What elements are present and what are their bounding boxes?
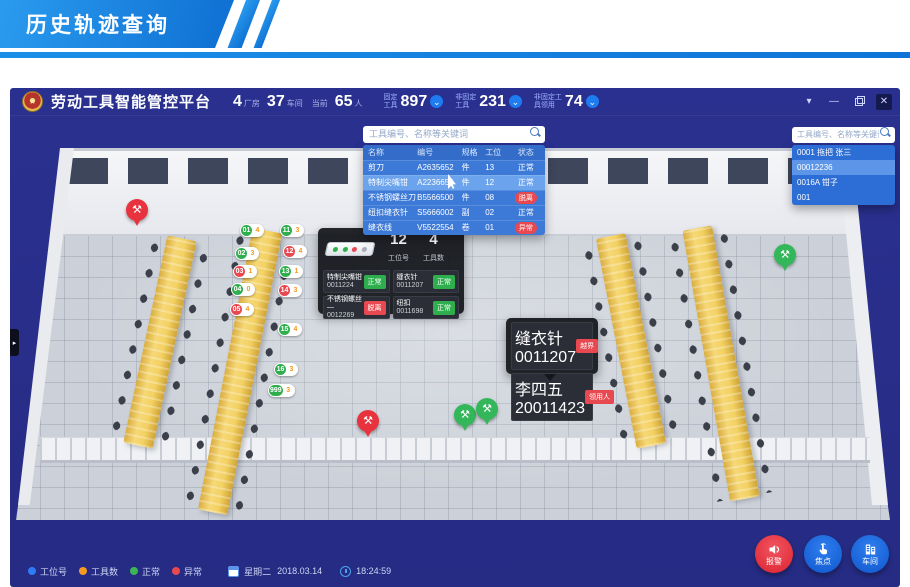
station-badge[interactable]: 023 — [235, 247, 259, 260]
site-stats: 4 厂房 37 车间 当前 65 人 — [233, 93, 370, 111]
list-item[interactable]: 0016A 钳子 — [792, 175, 895, 190]
tool-code: 0011224 — [327, 282, 362, 290]
current-label: 当前 — [312, 98, 328, 109]
police-badge-logo: ★ — [22, 91, 43, 112]
station-number: 12 — [284, 246, 295, 257]
station-badge[interactable]: 131 — [279, 265, 303, 278]
tool-code: 0011207 — [397, 282, 424, 290]
page-banner: 历史轨迹查询 — [0, 0, 234, 48]
station-badge[interactable]: 154 — [278, 323, 302, 336]
col-spec: 规格 — [462, 147, 486, 158]
tool-name: 缝衣针 — [515, 325, 576, 349]
station-badge[interactable]: 031 — [233, 265, 257, 278]
current-count: 65 — [335, 93, 353, 111]
chevron-down-icon[interactable]: ⌄ — [509, 95, 522, 108]
legend-toolcount: 工具数 — [79, 565, 118, 578]
tool-dot-normal — [342, 247, 348, 252]
station-number-stat: 12 工位号 — [388, 233, 409, 265]
station-label: 工位号 — [388, 255, 409, 262]
col-station: 工位 — [485, 147, 511, 158]
restore-icon[interactable] — [851, 94, 867, 110]
station-number: 999 — [269, 385, 283, 396]
tool-count: 3 — [283, 385, 294, 396]
tool-cell: 特制尖嘴钳 0011224 正常 — [323, 270, 390, 293]
col-code: 编号 — [417, 147, 461, 158]
col-status: 状态 — [512, 147, 540, 158]
workshop-unit: 车间 — [287, 98, 303, 109]
alert-row: 李四五 20011423 领用人 — [511, 373, 593, 421]
stat-unfixed-tools-inuse: 非固定工具领用 74 ⌄ — [534, 93, 599, 111]
table-row[interactable]: 缝衣线 V5522554 卷 01 异常 — [363, 220, 545, 235]
alert-badge: 越界 — [576, 339, 598, 353]
banner-underline — [0, 52, 910, 58]
col-name: 名称 — [368, 147, 417, 158]
tools-value: 4 — [423, 233, 444, 247]
map-pin-alert[interactable]: ⚒ — [357, 410, 379, 432]
tool-count: 3 — [286, 364, 297, 375]
legend-dot-green — [130, 567, 138, 575]
app-header: ★ 劳动工具智能管控平台 4 厂房 37 车间 当前 65 人 固定工具 897… — [10, 88, 900, 116]
station-number: 03 — [234, 266, 245, 277]
app-title: 劳动工具智能管控平台 — [51, 91, 211, 112]
tool-count-stat: 4 工具数 — [423, 233, 444, 265]
crossed-tools-icon: ⚒ — [132, 205, 142, 216]
table-row[interactable]: 纽扣缝衣针 S5666002 副 02 正常 — [363, 205, 545, 220]
alert-tooltip: 缝衣针 0011207 越界 李四五 20011423 领用人 — [506, 318, 598, 374]
station-badge[interactable]: 9993 — [268, 384, 295, 397]
legend-dot-red — [172, 567, 180, 575]
map-pin-alert[interactable]: ⚒ — [126, 199, 148, 221]
tool-count: 3 — [247, 248, 258, 259]
station-number: 02 — [236, 248, 247, 259]
station-tooltip: 12 工位号 4 工具数 特制尖嘴钳 0011224 正常 — [318, 228, 464, 314]
table-row[interactable]: 剪刀 A2635652 件 13 正常 — [363, 160, 545, 175]
tool-count: 4 — [290, 324, 301, 335]
workshop-scene: ▸ ⚒ ⚒ ⚒ ⚒ ⚒ ⚒ 014 023 031 040 054 113 12… — [10, 88, 900, 587]
station-number: 16 — [275, 364, 286, 375]
tool-dot-alert — [352, 247, 358, 252]
date: 2018.03.14 — [277, 566, 322, 576]
status-text: 正常 — [512, 162, 540, 173]
status-text: 正常 — [512, 177, 540, 188]
stat-value: 897 — [401, 93, 428, 111]
tool-strip-illustration — [325, 242, 376, 256]
crossed-tools-icon: ⚒ — [460, 410, 470, 421]
table-header: 名称 编号 规格 工位 状态 — [363, 145, 545, 160]
stat-value: 231 — [479, 93, 506, 111]
drawer-arrow-icon: ▸ — [13, 339, 17, 347]
status-badge: 正常 — [433, 301, 455, 315]
station-badge[interactable]: 054 — [230, 303, 254, 316]
time: 18:24:59 — [356, 566, 391, 576]
tool-cell: 不锈钢螺丝— 0012269 脱离 — [323, 296, 390, 319]
search-icon[interactable] — [880, 127, 890, 137]
drawer-handle[interactable]: ▸ — [10, 329, 19, 356]
tool-name: 特制尖嘴钳 — [327, 274, 362, 282]
tool-dot-normal — [333, 247, 339, 252]
workshop-button[interactable]: 车间 — [851, 535, 889, 573]
chevron-down-icon[interactable]: ⌄ — [430, 95, 443, 108]
tool-count: 1 — [291, 266, 302, 277]
crossed-tools-icon: ⚒ — [482, 404, 492, 415]
list-item-highlighted[interactable]: 00012236 — [792, 160, 895, 175]
station-number: 11 — [281, 225, 292, 236]
tool-stats: 固定工具 897 ⌄ 非固定工具 231 ⌄ 非固定工具领用 74 ⌄ — [384, 93, 611, 111]
tool-search-panel: 名称 编号 规格 工位 状态 剪刀 A2635652 件 13 正常 特 — [363, 124, 545, 235]
station-number: 05 — [231, 304, 242, 315]
tool-count: 4 — [295, 246, 306, 257]
tool-code: 0011698 — [397, 308, 424, 316]
stat-value: 74 — [565, 93, 583, 111]
station-badge[interactable]: 143 — [278, 284, 302, 297]
search-icon[interactable] — [530, 127, 540, 137]
legend-abnormal: 异常 — [172, 565, 202, 578]
focus-button[interactable]: 焦点 — [804, 535, 842, 573]
crossed-tools-icon: ⚒ — [363, 416, 373, 427]
tool-dot-empty — [361, 247, 367, 252]
pointer-hand-icon — [816, 542, 831, 557]
status-badge: 脱离 — [515, 192, 537, 204]
list-item[interactable]: 0001 拖把 张三 — [792, 145, 895, 160]
weekday: 星期二 — [244, 565, 271, 578]
logo-star-icon: ★ — [29, 97, 36, 106]
search-results-table: 名称 编号 规格 工位 状态 剪刀 A2635652 件 13 正常 特 — [363, 145, 545, 235]
legend-dot-blue — [28, 567, 36, 575]
window-menu-chevron-icon[interactable]: ▾ — [801, 94, 817, 110]
station-badge[interactable]: 124 — [283, 245, 307, 258]
page-title: 历史轨迹查询 — [0, 9, 170, 39]
station-badge[interactable]: 014 — [240, 224, 264, 237]
table-row[interactable]: 不锈钢螺丝刀 B5566500 件 08 脱离 — [363, 190, 545, 205]
clock-icon — [340, 566, 351, 577]
close-icon[interactable]: ✕ — [876, 94, 892, 110]
station-badge[interactable]: 163 — [274, 363, 298, 376]
minimize-icon[interactable]: — — [826, 94, 842, 110]
station-value: 12 — [388, 233, 409, 247]
stat-fixed-tools: 固定工具 897 ⌄ — [384, 93, 444, 111]
status-badge: 脱离 — [364, 301, 386, 315]
map-pin-normal[interactable]: ⚒ — [476, 398, 498, 420]
station-number: 04 — [232, 284, 243, 295]
person-code: 20011423 — [515, 400, 585, 418]
workshop-count: 37 — [267, 93, 285, 111]
person-search-panel: 0001 拖把 张三 00012236 0016A 钳子 001 — [792, 124, 895, 205]
factory-unit: 厂房 — [244, 98, 260, 109]
tool-count: 3 — [290, 285, 301, 296]
station-number: 01 — [241, 225, 252, 236]
status-badge: 正常 — [364, 275, 386, 289]
tool-count: 0 — [243, 284, 254, 295]
tool-count: 4 — [252, 225, 263, 236]
tool-code: 0011207 — [515, 349, 576, 367]
station-number: 14 — [279, 285, 290, 296]
alert-badge: 领用人 — [585, 390, 614, 404]
current-unit: 人 — [355, 98, 363, 109]
tools-label: 工具数 — [423, 255, 444, 262]
alarm-button[interactable]: 报警 — [755, 535, 793, 573]
result-list: 0001 拖把 张三 00012236 0016A 钳子 001 — [792, 145, 895, 205]
person-name: 李四五 — [515, 376, 585, 400]
legend-station: 工位号 — [28, 565, 67, 578]
status-badge: 异常 — [515, 222, 537, 234]
status-text: 正常 — [512, 207, 540, 218]
crossed-tools-icon: ⚒ — [780, 250, 790, 261]
app-window: ▸ ⚒ ⚒ ⚒ ⚒ ⚒ ⚒ 014 023 031 040 054 113 12… — [10, 88, 900, 587]
window-controls: ▾ — ✕ — [801, 94, 892, 110]
status-badge: 正常 — [433, 275, 455, 289]
tool-code: 0012269 — [327, 312, 364, 320]
tool-count: 3 — [292, 225, 303, 236]
legend-bar: 工位号 工具数 正常 异常 星期二 2018.03.14 18:24:59 — [28, 564, 397, 578]
workshop-building-icon — [863, 542, 878, 557]
station-badge[interactable]: 040 — [231, 283, 255, 296]
factory-count: 4 — [233, 93, 242, 111]
alarm-speaker-icon — [767, 542, 782, 557]
tool-count: 4 — [242, 304, 253, 315]
legend-dot-orange — [79, 567, 87, 575]
tool-cell: 纽扣 0011698 正常 — [393, 296, 460, 319]
tool-search-input[interactable] — [363, 126, 545, 143]
screen: 历史轨迹查询 ▸ ⚒ ⚒ ⚒ ⚒ — [0, 0, 910, 587]
station-number: 13 — [280, 266, 291, 277]
map-pin-normal[interactable]: ⚒ — [454, 404, 476, 426]
stat-unfixed-tools: 非固定工具 231 ⌄ — [455, 93, 522, 111]
tool-name: 纽扣 — [397, 300, 424, 308]
calendar-icon — [228, 566, 239, 577]
tool-name: 缝衣针 — [397, 274, 424, 282]
station-badge[interactable]: 113 — [280, 224, 304, 237]
tool-name: 不锈钢螺丝— — [327, 296, 364, 312]
map-pin-normal[interactable]: ⚒ — [774, 244, 796, 266]
tool-count: 1 — [245, 266, 256, 277]
tool-cell: 缝衣针 0011207 正常 — [393, 270, 460, 293]
legend-normal: 正常 — [130, 565, 160, 578]
station-number: 15 — [279, 324, 290, 335]
list-item[interactable]: 001 — [792, 190, 895, 205]
alert-row: 缝衣针 0011207 越界 — [511, 322, 593, 370]
chevron-down-icon[interactable]: ⌄ — [586, 95, 599, 108]
banner-stripe — [254, 0, 280, 48]
